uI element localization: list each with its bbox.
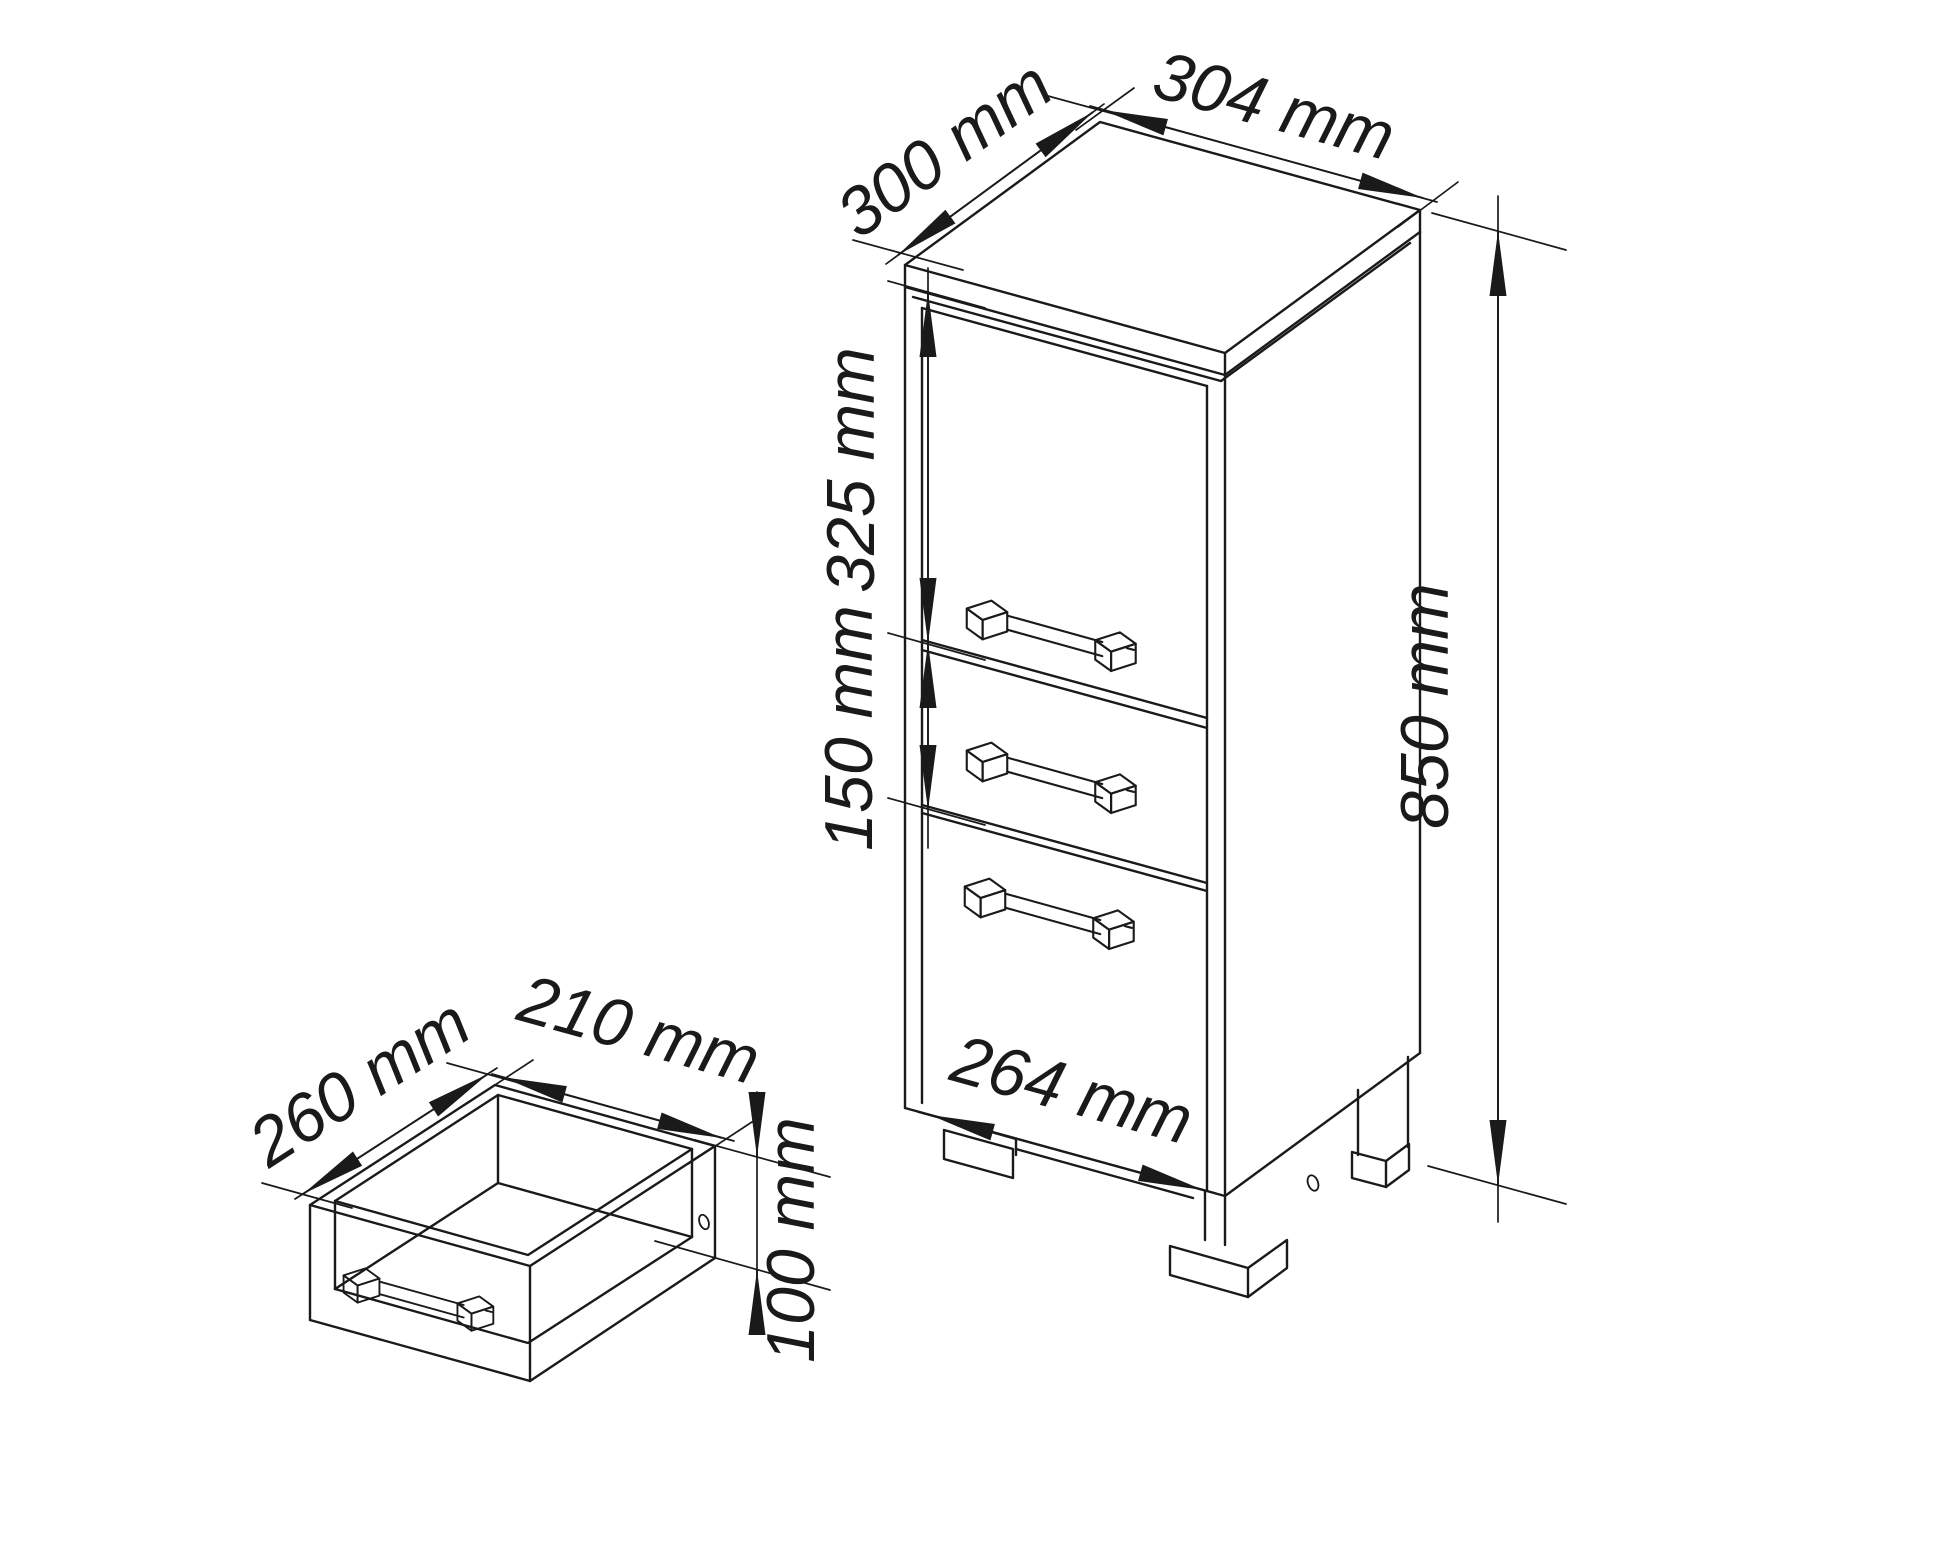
cabinet-bottom-right-edge xyxy=(1225,1053,1420,1196)
dimension-drawing: 300 mm 304 mm 325 mm 150 mm 850 mm 264 m… xyxy=(0,0,1946,1562)
drawing-canvas: 300 mm 304 mm 325 mm 150 mm 850 mm 264 m… xyxy=(0,0,1946,1562)
top-door-bottom-gap xyxy=(922,640,1207,718)
drawer-detail-handle xyxy=(344,1268,494,1330)
back-right-foot xyxy=(1352,1152,1386,1187)
screw-hole xyxy=(1306,1174,1321,1192)
dim-drawer-depth-label: 260 mm xyxy=(235,984,483,1182)
dim-drawer-height-label: 150 mm xyxy=(811,605,887,851)
drawer-detail xyxy=(310,1085,715,1381)
cabinet-handles xyxy=(965,601,1136,949)
drawer-bottom-gap xyxy=(922,805,1207,883)
front-right-foot xyxy=(1170,1246,1248,1297)
dimensions: 300 mm 304 mm 325 mm 150 mm 850 mm 264 m… xyxy=(235,37,1566,1363)
bottom-door-handle xyxy=(965,879,1134,949)
screw-hole xyxy=(697,1213,711,1230)
front-left-foot xyxy=(944,1130,1013,1178)
drawer-handle xyxy=(967,743,1136,813)
dim-total-height-label: 850 mm xyxy=(1387,583,1463,829)
drawer-front-bottom-edge xyxy=(310,1320,530,1381)
dim-drawer-box-height-label: 100 mm xyxy=(753,1117,829,1363)
dim-top-width-label: 304 mm xyxy=(1146,37,1403,176)
top-door-handle xyxy=(967,601,1136,671)
dim-drawer-width xyxy=(502,1077,722,1138)
dim-drawer-width-label: 210 mm xyxy=(510,960,768,1099)
drawer-inner-rim xyxy=(335,1095,692,1255)
dim-door-height-label: 325 mm xyxy=(813,347,889,593)
dim-front-width-label: 264 mm xyxy=(943,1020,1201,1159)
